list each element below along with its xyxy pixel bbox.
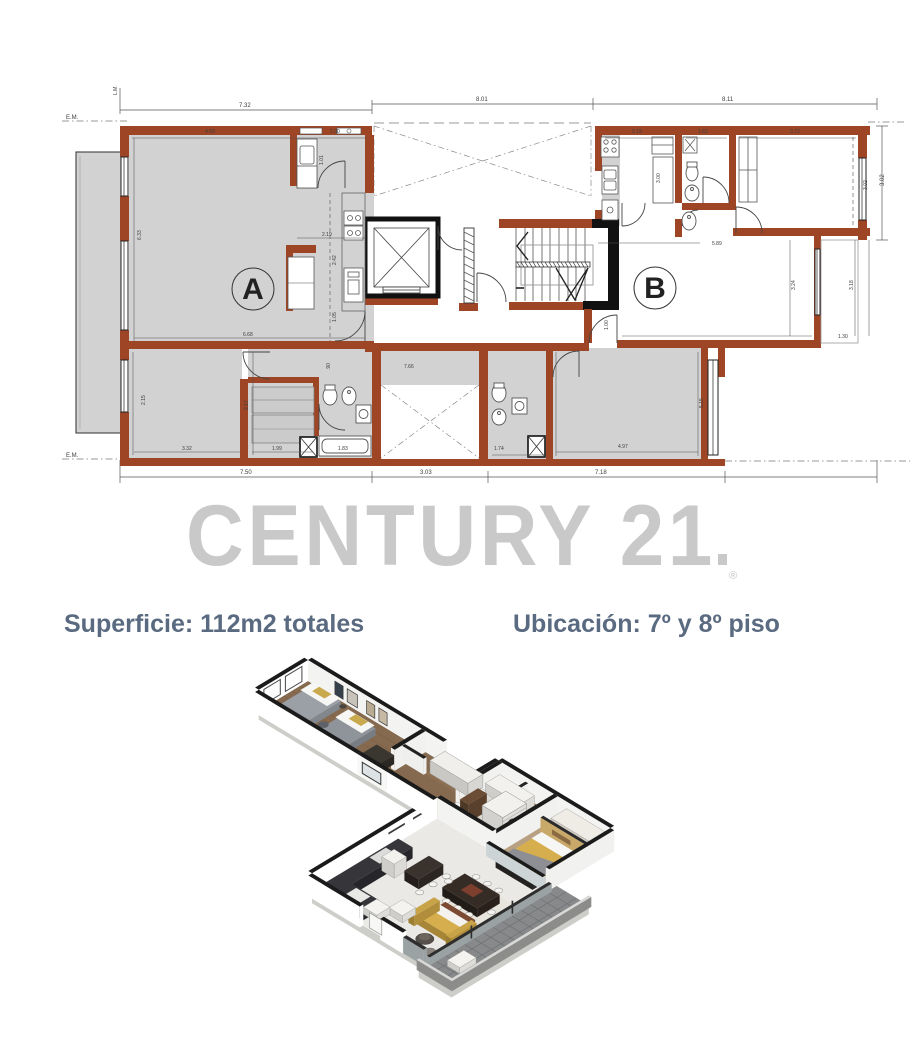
svg-text:1.01: 1.01	[319, 155, 325, 165]
svg-text:7.66: 7.66	[404, 364, 414, 370]
svg-text:Superficie: 112m2 totales: Superficie: 112m2 totales	[64, 610, 364, 638]
svg-text:.90: .90	[326, 363, 332, 370]
svg-text:2.17: 2.17	[244, 400, 250, 410]
svg-text:6.68: 6.68	[243, 332, 253, 338]
svg-text:7.32: 7.32	[239, 103, 251, 109]
svg-text:3.03: 3.03	[420, 470, 432, 476]
svg-text:3.72: 3.72	[790, 129, 800, 135]
svg-text:1.74: 1.74	[494, 446, 504, 452]
svg-text:7.50: 7.50	[240, 470, 252, 476]
svg-text:3.18: 3.18	[849, 280, 855, 290]
svg-text:5.89: 5.89	[712, 241, 722, 247]
svg-text:2.00: 2.00	[330, 129, 340, 135]
svg-text:L.M.: L.M.	[113, 85, 119, 95]
svg-text:8.11: 8.11	[722, 97, 734, 103]
svg-text:8.01: 8.01	[476, 97, 488, 103]
svg-text:B: B	[644, 272, 666, 305]
svg-text:5.15: 5.15	[699, 398, 705, 408]
svg-text:1.05: 1.05	[332, 312, 338, 322]
svg-text:CENTURY 21: CENTURY 21	[186, 488, 716, 584]
svg-text:3.32: 3.32	[182, 446, 192, 452]
svg-text:Ubicación: 7º y 8º piso: Ubicación: 7º y 8º piso	[513, 610, 780, 638]
svg-text:3.00: 3.00	[656, 173, 662, 183]
svg-text:6.33: 6.33	[137, 230, 143, 240]
svg-text:1.99: 1.99	[272, 446, 282, 452]
svg-text:1.62: 1.62	[698, 129, 708, 135]
svg-text:1.00: 1.00	[604, 320, 610, 330]
svg-text:E.M.: E.M.	[66, 453, 79, 459]
svg-text:3.24: 3.24	[791, 280, 797, 290]
svg-text:7.18: 7.18	[595, 470, 607, 476]
svg-text:2.19: 2.19	[632, 129, 642, 135]
svg-text:®: ®	[729, 570, 737, 582]
svg-text:E.M.: E.M.	[66, 115, 79, 121]
svg-text:3.02: 3.02	[863, 180, 869, 190]
svg-text:1.83: 1.83	[338, 446, 348, 452]
svg-text:A: A	[242, 273, 264, 306]
svg-text:4.97: 4.97	[618, 444, 628, 450]
svg-text:3.02: 3.02	[880, 174, 886, 186]
svg-text:2.42: 2.42	[332, 255, 338, 265]
svg-text:4.59: 4.59	[205, 129, 215, 135]
svg-text:1.30: 1.30	[838, 334, 848, 340]
svg-text:2.19: 2.19	[322, 232, 332, 238]
svg-text:2.15: 2.15	[141, 395, 147, 405]
